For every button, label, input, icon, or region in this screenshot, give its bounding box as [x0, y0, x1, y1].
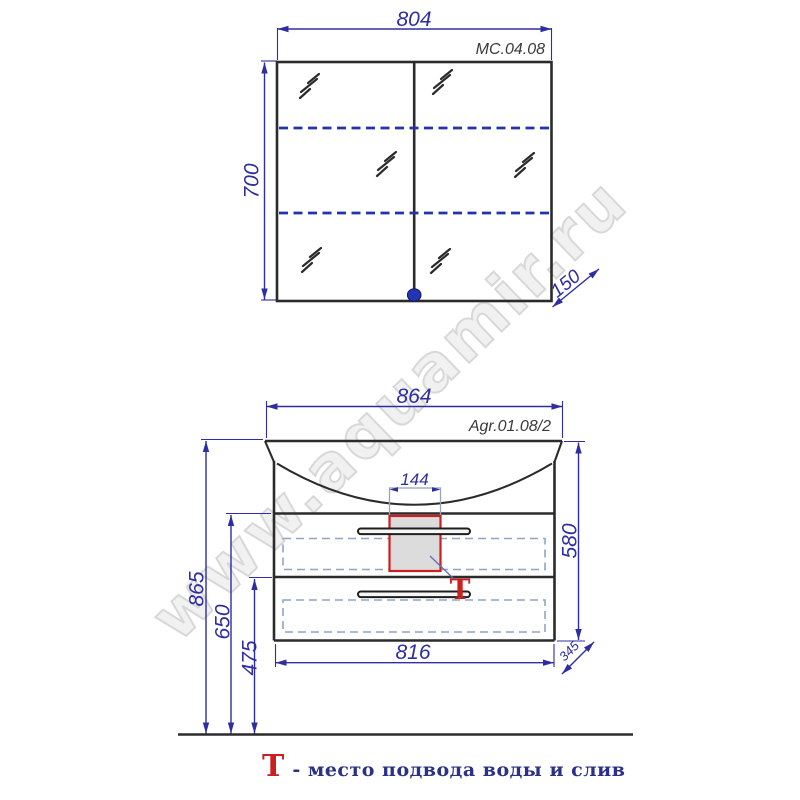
vanity-model-label: Agr.01.08/2 [468, 418, 551, 435]
dim-mirror-depth: 150 [547, 266, 601, 310]
dim-mirror-height: 700 [241, 61, 278, 300]
arrow-up [261, 63, 267, 74]
dim-label-body-height: 580 [559, 523, 582, 558]
vanity-drawing: 864 Agr.01.08/2 144 [178, 385, 633, 735]
drawer2-inner-outline [283, 600, 545, 632]
dim-label-total-height: 865 [186, 571, 209, 606]
dim-vanity-body-width: 816 [276, 641, 555, 667]
legend-water-symbol: Т [262, 749, 284, 784]
mirror-glare-icon [433, 70, 452, 94]
arrow-up [575, 443, 581, 454]
mirror-glare-icon [300, 74, 319, 98]
mirror-glare-icon [515, 153, 534, 177]
arrow-left [276, 660, 287, 666]
siphon-space: 144 [390, 470, 441, 571]
legend: Т - место подвода воды и слив [262, 749, 625, 784]
dim-vanity-body-height: 580 [557, 442, 585, 642]
dim-label-height-to-top: 650 [212, 604, 235, 639]
arrow-up [251, 579, 257, 590]
arrow-down [251, 723, 257, 734]
dim-label-mirror-width: 804 [396, 8, 431, 31]
siphon-upper-box [390, 488, 441, 516]
arrow-right [543, 660, 554, 666]
mirror-model-label: МС.04.08 [476, 41, 545, 58]
arrow-right [552, 403, 563, 409]
dim-label-siphon-width: 144 [400, 470, 428, 489]
mirror-cabinet-drawing: 804 МС.04.08 700 [241, 8, 602, 309]
mirror-glare-icon [431, 249, 450, 273]
dim-height-to-top: 650 [212, 514, 272, 734]
sink-right-bevel [555, 441, 563, 462]
arrow-down [261, 289, 267, 300]
dim-label-height-to-divider: 475 [239, 640, 262, 675]
dim-label-vanity-width: 864 [396, 385, 431, 408]
furniture-dimension-drawing: 804 МС.04.08 700 [0, 0, 800, 800]
mirror-glare-icon [377, 152, 396, 176]
arrow-left [278, 26, 289, 32]
legend-text: - место подвода воды и слив [292, 759, 625, 781]
arrow-right [541, 26, 552, 32]
arrow-down [228, 723, 234, 734]
arrow-up [228, 515, 234, 526]
dim-total-height: 865 [186, 440, 264, 734]
arrow-up [203, 441, 209, 452]
dim-vanity-depth: 345 [556, 637, 596, 676]
dim-label-mirror-height: 700 [241, 163, 264, 198]
mirror-glare-icon [302, 248, 321, 272]
water-supply-marker: Т [450, 573, 471, 606]
arrow-left [267, 403, 278, 409]
siphon-red-box [390, 516, 441, 571]
door-knob [407, 289, 421, 302]
arrow-down [575, 629, 581, 640]
drawer1-handle [358, 529, 470, 535]
dim-height-to-divider: 475 [239, 578, 273, 734]
dim-label-mirror-depth: 150 [547, 266, 585, 303]
dim-label-body-width: 816 [395, 641, 430, 664]
technical-drawing-page: www.aquamir.ru 804 МС.04.08 [0, 0, 800, 800]
sink-left-bevel [265, 441, 274, 462]
arrow-down [203, 723, 209, 734]
